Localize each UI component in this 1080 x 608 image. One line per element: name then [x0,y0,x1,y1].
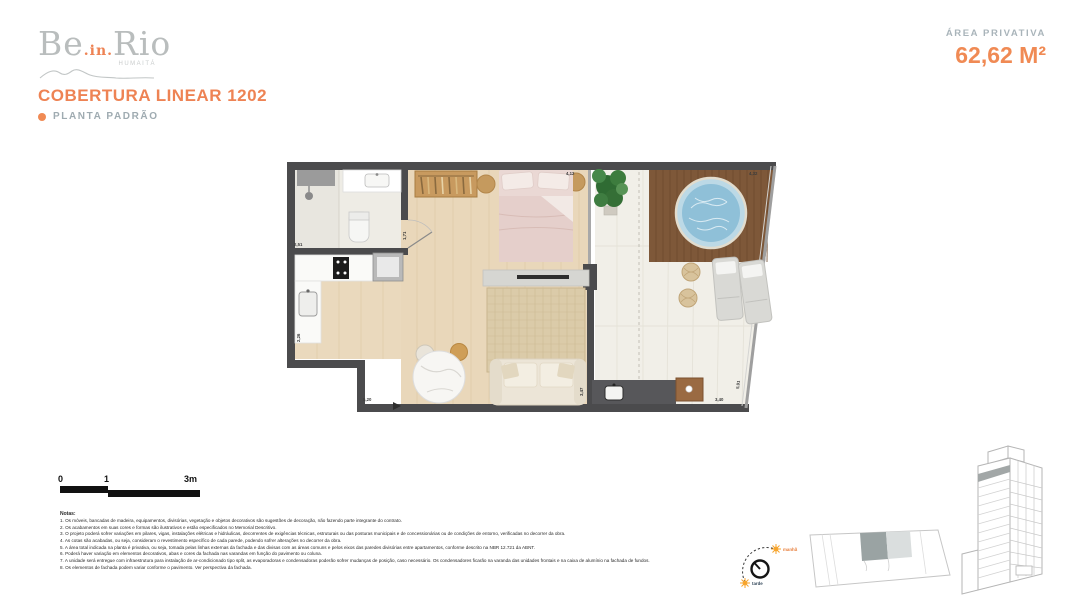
sun-morning-icon [771,544,781,554]
bed [499,170,573,262]
page-subtitle-row: PLANTA PADRÃO [38,111,159,122]
logo-rio: Rio [113,24,171,63]
outdoor-sink [605,386,623,400]
mountain-squiggle-icon [38,67,158,81]
floor-plate-key-plan [800,527,955,591]
scale-bar: 0 1 3m [60,474,210,500]
unit-highlight-light [886,531,912,559]
note-line: 5. A área total indicada na planta é pri… [60,545,672,552]
page-subtitle: PLANTA PADRÃO [53,111,159,122]
dim-terrace-width: 3,40 [715,397,724,402]
brand-logo: Be.in.Rio HUMAITÁ [38,24,168,86]
private-area-block: ÁREA PRIVATIVA 62,62 M² [946,28,1046,69]
note-line: 7. A unidade será entregue com infraestr… [60,558,672,565]
note-line: 1. Os móveis, bancadas de madeira, equip… [60,518,672,525]
tv [517,275,569,279]
sun-afternoon-icon [740,578,750,588]
floor-plan: 2,51 1,71 4,12 4,32 2,26 5,20 3,47 3,40 … [287,156,779,416]
note-line: 3. O projeto poderá sofrer variações em … [60,531,672,538]
tv-console [483,270,589,286]
cooktop [333,257,349,279]
unit-highlight [860,532,888,561]
duct-shaft [297,170,335,186]
scale-one: 1 [104,474,109,484]
building-illustration [950,436,1060,596]
outdoor-counter [592,380,676,404]
sun-morning-label: manhã [783,547,798,552]
private-area-label: ÁREA PRIVATIVA [946,28,1046,39]
sofa [490,359,586,405]
dim-deck-width: 4,32 [749,171,758,176]
pouf-left [477,175,495,193]
wardrobe-rack [415,171,477,197]
logo-in: .in. [84,43,113,59]
notes-heading: Notas: [60,511,672,517]
notes-block: Notas: 1. Os móveis, bancadas de madeira… [60,511,672,571]
sun-afternoon-label: tarde [752,581,763,586]
brand-logo-text: Be.in.Rio [38,24,168,63]
scale-bar-segment-2 [108,490,200,497]
scale-zero: 0 [58,474,63,484]
note-line: 6. Poderá haver variação em elementos de… [60,551,672,558]
dim-living-height: 3,47 [579,387,584,396]
floorplan-brochure-page: Be.in.Rio HUMAITÁ COBERTURA LINEAR 1202 … [0,0,1080,608]
scale-three: 3m [184,474,197,484]
dim-bedroom-width: 4,12 [566,171,575,176]
dim-bath-width: 2,51 [294,242,303,247]
note-line: 4. As cotas são acabadas, ou seja, consi… [60,538,672,545]
private-area-value: 62,62 M² [946,42,1046,69]
page-title: COBERTURA LINEAR 1202 [38,86,267,106]
bullet-dot-icon [38,113,46,121]
dim-living-width: 5,20 [363,397,372,402]
sun-path-compass: manhã tarde [735,538,799,592]
logo-be: Be [38,24,84,63]
dim-bath-height: 1,71 [402,231,407,240]
jacuzzi-pool [676,178,746,248]
building-entrance [1016,566,1032,575]
note-line: 8. Os elementos de fachada podem variar … [60,565,672,572]
kitchen-sink [299,292,317,316]
scale-bar-segment-1 [60,486,108,493]
note-line: 2. Os acabamentos em suas cores e formas… [60,525,672,532]
wood-side-table [676,378,703,401]
sliding-glass-door [588,170,591,264]
dim-kitchen-height: 2,26 [296,333,301,342]
